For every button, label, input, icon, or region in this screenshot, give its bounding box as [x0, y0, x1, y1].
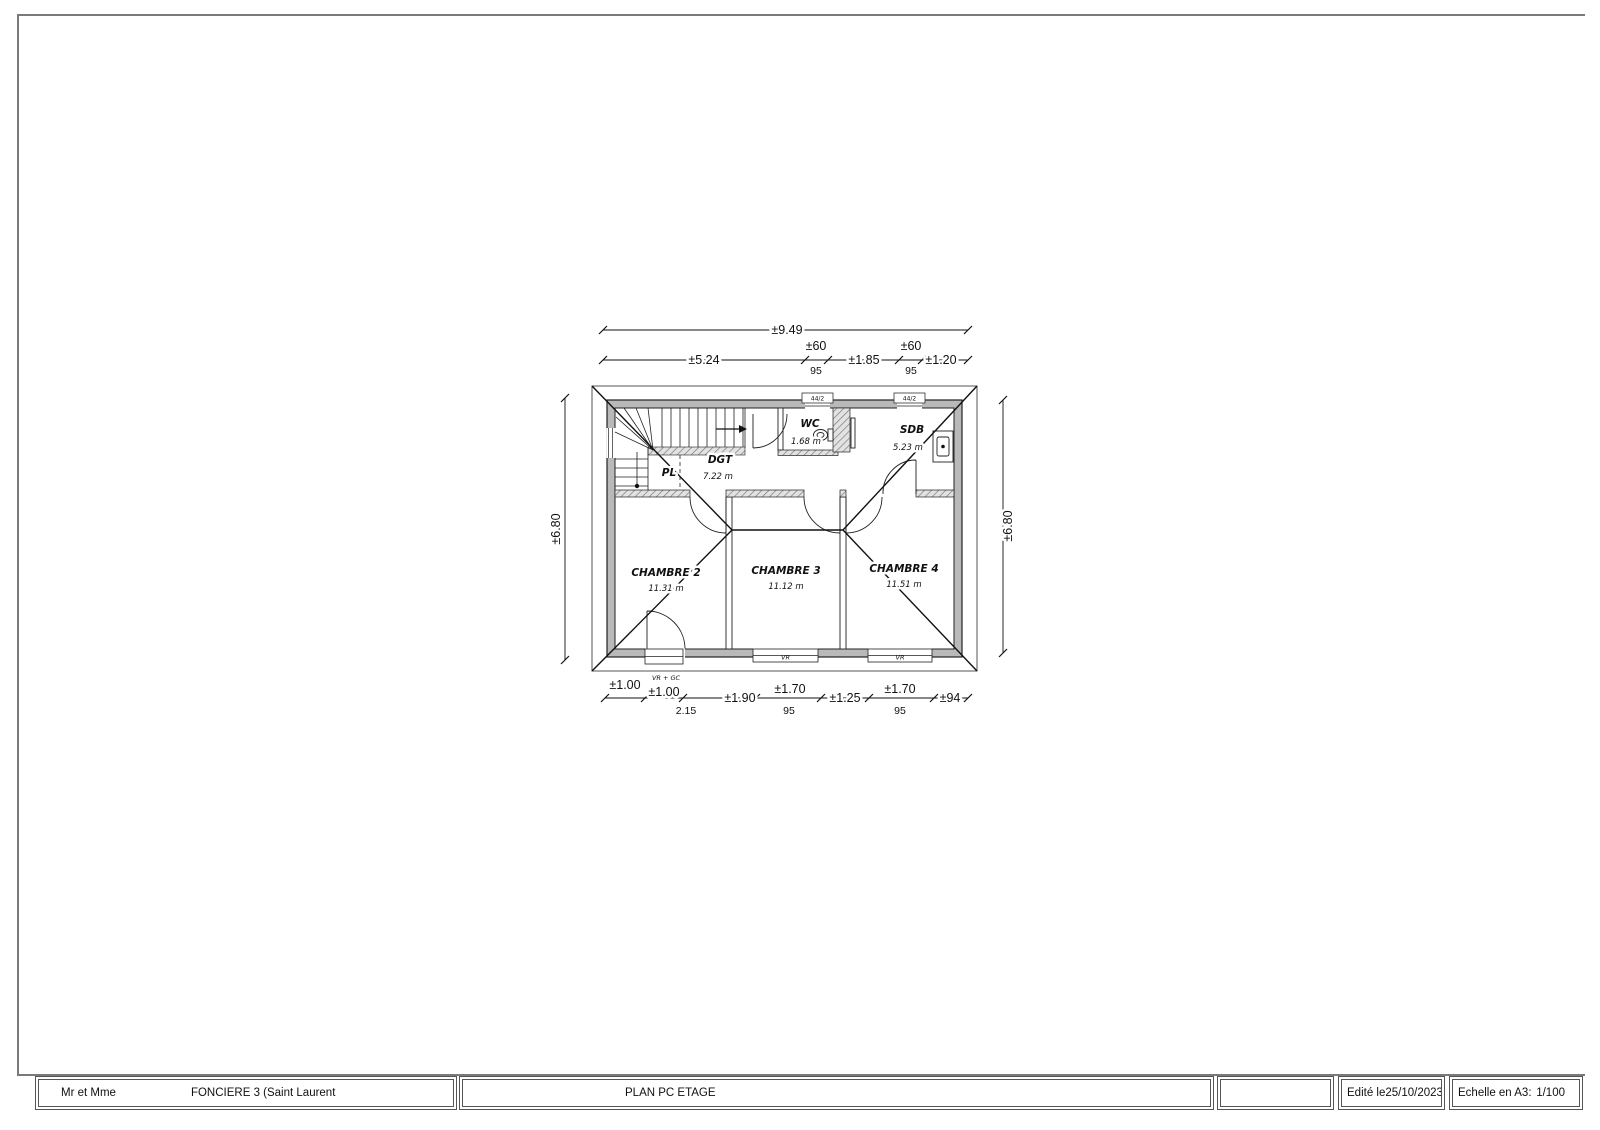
dim-top-total: ±9.49	[771, 323, 802, 337]
dim-top-4-sub: 95	[905, 365, 917, 377]
edited-label: Edité le	[1347, 1087, 1385, 1099]
dim-bot-6: ±1.70	[884, 682, 915, 696]
room-chambre2-area: 11.31 m	[648, 584, 683, 594]
edited-date: 25/10/2023	[1385, 1087, 1442, 1099]
dim-top-4: ±60	[901, 339, 922, 353]
room-chambre3-name: CHAMBRE 3	[751, 565, 820, 577]
client-name: Mr et Mme	[39, 1087, 116, 1099]
wall-ch3-ch4	[840, 497, 846, 649]
room-dgt-area: 7.22 m	[703, 472, 733, 482]
dim-top-1: ±5.24	[688, 353, 719, 367]
dim-bot-7: ±94	[940, 691, 961, 705]
scale-value: 1/100	[1536, 1087, 1565, 1099]
bottom-window-1-label: VR	[781, 654, 790, 662]
room-sdb-area: 5.23 m	[893, 443, 923, 453]
project-name: FONCIERE 3 (Saint Laurent	[191, 1087, 335, 1099]
drawing-title: PLAN PC ETAGE	[463, 1087, 716, 1099]
top-window-1: 44/2	[802, 393, 833, 409]
title-block-title-cell: PLAN PC ETAGE	[459, 1076, 1214, 1110]
dim-top-2: ±60	[806, 339, 827, 353]
dim-top-3: ±1.85	[848, 353, 879, 367]
dim-bot-2: ±1.00	[648, 685, 679, 699]
room-dgt-name: DGT	[708, 454, 733, 466]
title-block-date-cell: Edité le 25/10/2023	[1338, 1076, 1445, 1110]
dim-bot-3: ±1.90	[724, 691, 755, 705]
scale-label: Echelle en A3:	[1458, 1087, 1532, 1099]
left-wall-window	[607, 428, 617, 458]
room-chambre4-name: CHAMBRE 4	[869, 563, 938, 575]
room-wc-area: 1.68 m	[791, 437, 821, 447]
dim-left: ±6.80	[549, 513, 563, 544]
title-block-empty-cell	[1217, 1076, 1334, 1110]
wc-bottom-wall	[778, 450, 838, 456]
floor-plan: 44/2 44/2	[0, 0, 1600, 1130]
top-window-2-label: 44/2	[903, 396, 917, 403]
top-window-2: 44/2	[894, 393, 925, 409]
room-chambre2-name: CHAMBRE 2	[631, 567, 700, 579]
washbasin-icon	[933, 431, 953, 462]
dim-bot-6-sub: 95	[894, 705, 906, 717]
wc-sdb-duct	[833, 408, 850, 452]
exterior-wall	[607, 400, 962, 657]
bottom-window-1: VR	[753, 649, 818, 663]
dim-right: ±6.80	[1001, 510, 1015, 541]
dim-bot-4-sub: 95	[783, 705, 795, 717]
wall-ch2-ch3	[726, 497, 732, 649]
room-chambre3-area: 11.12 m	[768, 582, 803, 592]
bottom-door-label: VR + GC	[652, 674, 681, 682]
room-wc-name: WC	[800, 418, 820, 430]
room-pl-name: PL	[662, 467, 676, 479]
room-sdb-name: SDB	[900, 424, 924, 436]
sdb-radiator	[851, 418, 855, 448]
dim-bot-4: ±1.70	[774, 682, 805, 696]
bottom-window-2-label: VR	[896, 654, 905, 662]
wc-left-wall	[778, 408, 783, 450]
room-chambre4-area: 11.51 m	[886, 580, 921, 590]
title-block-client-cell: Mr et Mme FONCIERE 3 (Saint Laurent	[35, 1076, 457, 1110]
dim-top-2-sub: 95	[810, 365, 822, 377]
dim-bot-2-sub: 2.15	[676, 705, 697, 717]
dim-bot-5: ±1.25	[829, 691, 860, 705]
dim-bot-1: ±1.00	[609, 678, 640, 692]
dim-top-5: ±1.20	[925, 353, 956, 367]
top-window-1-label: 44/2	[811, 396, 825, 403]
title-block-scale-cell: Echelle en A3: 1/100	[1449, 1076, 1583, 1110]
bottom-window-2: VR	[868, 649, 932, 663]
